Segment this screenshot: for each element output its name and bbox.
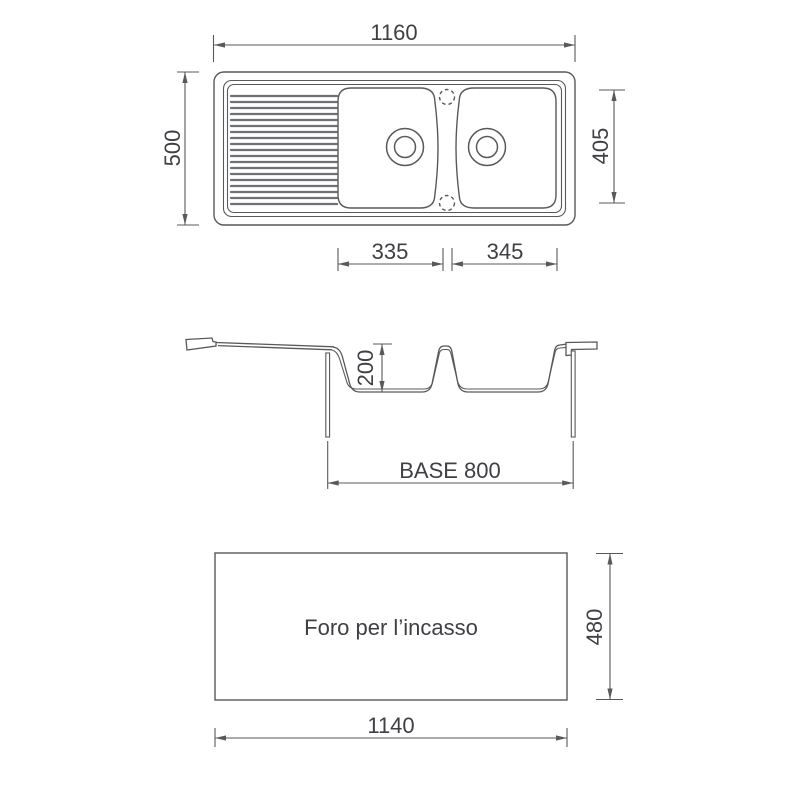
- dim-345-arrow-left: [452, 261, 463, 266]
- section-right-rim-lip: [566, 342, 597, 356]
- dim-1160-label: 1160: [370, 20, 417, 45]
- dim-345-label: 345: [487, 239, 524, 264]
- dim-1140-arrow-right: [556, 735, 567, 740]
- cabinet-wall-left: [326, 353, 330, 437]
- section-view: [186, 338, 597, 437]
- dim-1140-arrow-left: [215, 735, 226, 740]
- dim-1160-arrow-right: [564, 42, 575, 47]
- dim-base800-arrow-left: [328, 480, 339, 485]
- dim-480-label: 480: [582, 609, 607, 646]
- dim-200-label: 200: [353, 350, 378, 387]
- dim-335-arrow-left: [338, 261, 349, 266]
- dim-200-arrow-top: [379, 344, 384, 355]
- dim-1160-arrow-left: [214, 42, 225, 47]
- dim-335-label: 335: [372, 239, 409, 264]
- dim-405-arrow-bottom: [611, 192, 616, 203]
- top-view: [214, 72, 575, 225]
- dim-500-arrow-top: [182, 72, 187, 83]
- dim-1140-label: 1140: [367, 713, 414, 738]
- dim-500-label: 500: [160, 130, 185, 167]
- section-left-rim-lip: [186, 338, 216, 350]
- dim-345-arrow-right: [546, 261, 557, 266]
- tap-hole-bottom-dashed-circle: [440, 196, 455, 211]
- dim-200-arrow-bottom: [379, 381, 384, 392]
- dim-480-arrow-bottom: [607, 689, 612, 700]
- tap-hole-top-dashed-circle: [440, 90, 455, 105]
- sink-technical-drawing-page: 1160 500 405 335 345 200 BASE 800: [0, 0, 800, 800]
- dim-405-arrow-top: [611, 90, 616, 101]
- dim-335-arrow-right: [432, 261, 443, 266]
- dim-405-label: 405: [588, 128, 613, 165]
- technical-drawing-canvas: 1160 500 405 335 345 200 BASE 800: [0, 0, 800, 800]
- dim-480-arrow-top: [607, 554, 612, 565]
- dim-base800-arrow-right: [562, 480, 573, 485]
- dim-500-arrow-bottom: [182, 214, 187, 225]
- dim-base800-label: BASE 800: [399, 458, 501, 483]
- cutout-view-dimensions: [215, 554, 623, 748]
- cutout-caption: Foro per l’incasso: [304, 615, 478, 640]
- drainboard-ribs: [231, 96, 337, 204]
- cabinet-wall-right: [571, 351, 575, 437]
